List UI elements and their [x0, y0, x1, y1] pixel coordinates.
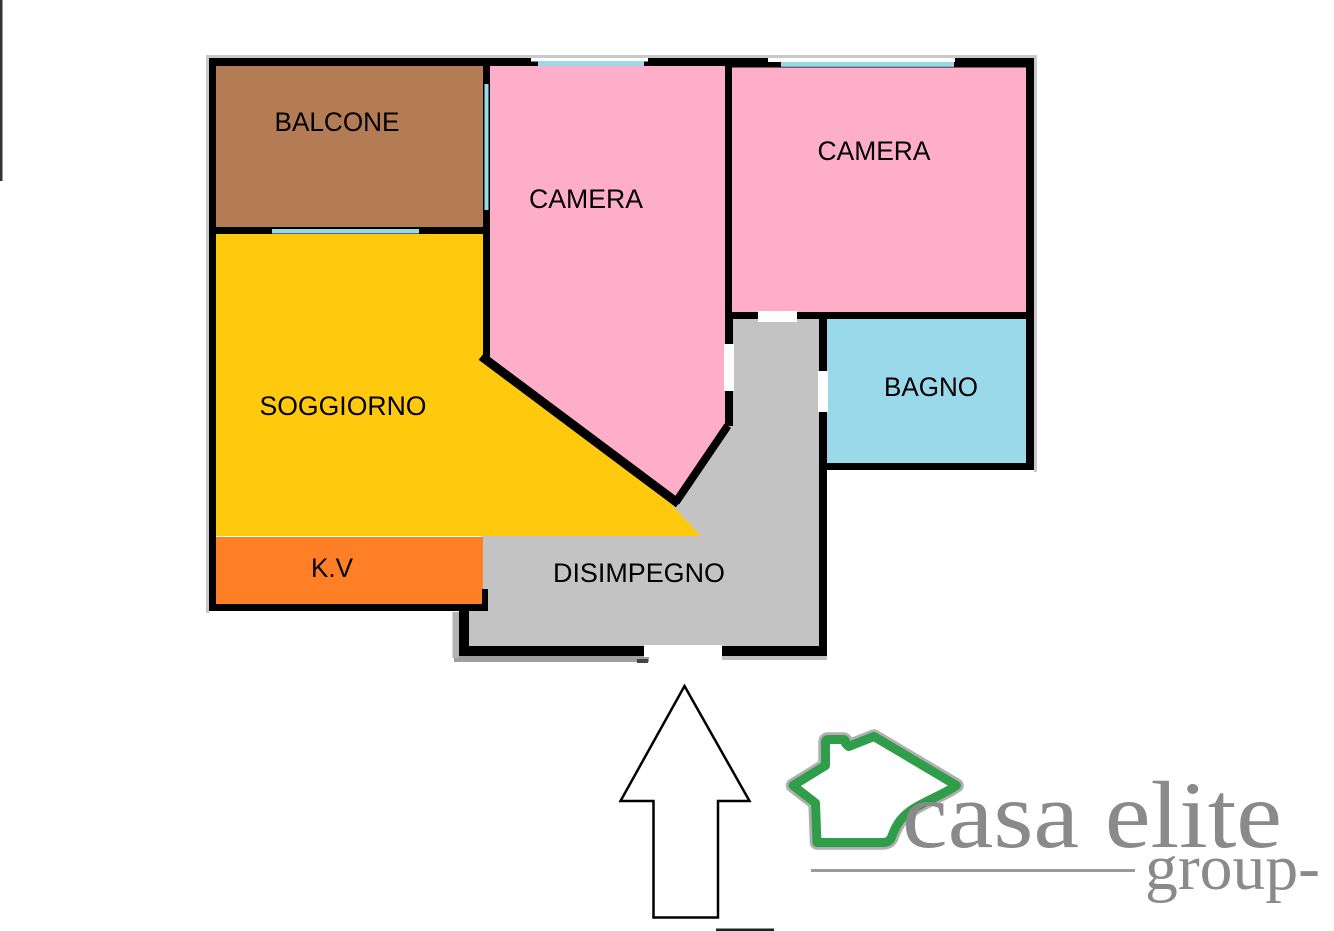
svg-text:BALCONE: BALCONE [275, 107, 400, 137]
svg-text:CAMERA: CAMERA [818, 136, 931, 166]
svg-text:K.V: K.V [311, 553, 353, 583]
svg-text:BAGNO: BAGNO [884, 372, 978, 402]
svg-text:group-: group- [1145, 832, 1320, 904]
svg-text:DISIMPEGNO: DISIMPEGNO [553, 558, 725, 588]
svg-text:CAMERA: CAMERA [529, 184, 643, 214]
svg-text:SOGGIORNO: SOGGIORNO [260, 391, 427, 421]
